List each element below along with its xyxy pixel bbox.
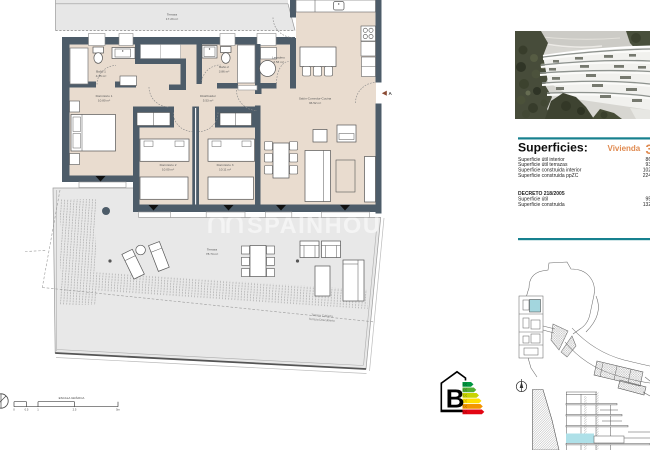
svg-text:3: 3 bbox=[646, 141, 650, 157]
svg-text:36.52 m²: 36.52 m² bbox=[309, 101, 321, 105]
svg-text:4.35 m²: 4.35 m² bbox=[96, 74, 107, 78]
svg-text:10.11 m²: 10.11 m² bbox=[219, 167, 231, 171]
svg-text:10.80 m²: 10.80 m² bbox=[98, 98, 110, 102]
svg-text:132.: 132. bbox=[643, 202, 650, 208]
svg-text:Superficies:: Superficies: bbox=[518, 141, 588, 155]
svg-text:78.74 m²: 78.74 m² bbox=[206, 252, 218, 256]
svg-text:5.53 m²: 5.53 m² bbox=[203, 98, 214, 102]
svg-text:Vivienda: Vivienda bbox=[608, 144, 641, 153]
svg-text:17.23 m²: 17.23 m² bbox=[166, 17, 178, 21]
svg-text:2.5: 2.5 bbox=[73, 408, 77, 412]
svg-text:3.53 m²: 3.53 m² bbox=[273, 60, 284, 64]
svg-text:B: B bbox=[446, 383, 465, 413]
svg-text:Superficie construida: Superficie construida bbox=[518, 202, 565, 208]
svg-text:10.00 m²: 10.00 m² bbox=[162, 167, 174, 171]
svg-text:3.86 m²: 3.86 m² bbox=[219, 69, 230, 73]
svg-text:0.5: 0.5 bbox=[25, 408, 29, 412]
svg-text:Superficie construida ppZC: Superficie construida ppZC bbox=[518, 173, 579, 179]
svg-text:224.: 224. bbox=[643, 173, 650, 179]
svg-text:ESCALA GRÁFICA: ESCALA GRÁFICA bbox=[59, 396, 85, 400]
